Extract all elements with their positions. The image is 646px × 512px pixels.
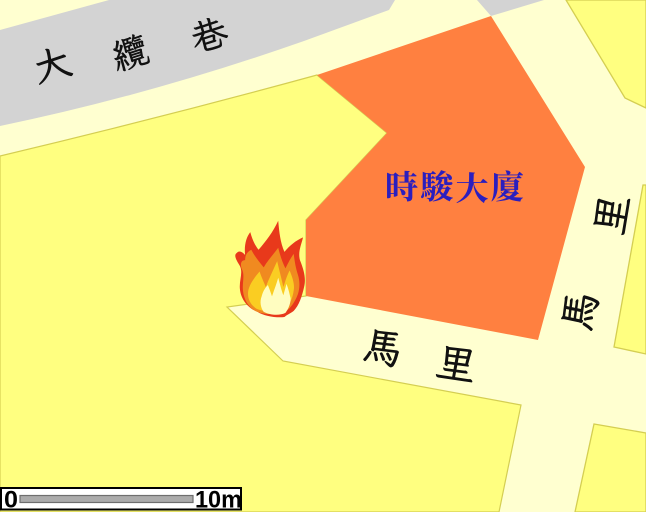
svg-text:10m: 10m — [195, 487, 242, 512]
svg-text:0: 0 — [4, 487, 18, 512]
